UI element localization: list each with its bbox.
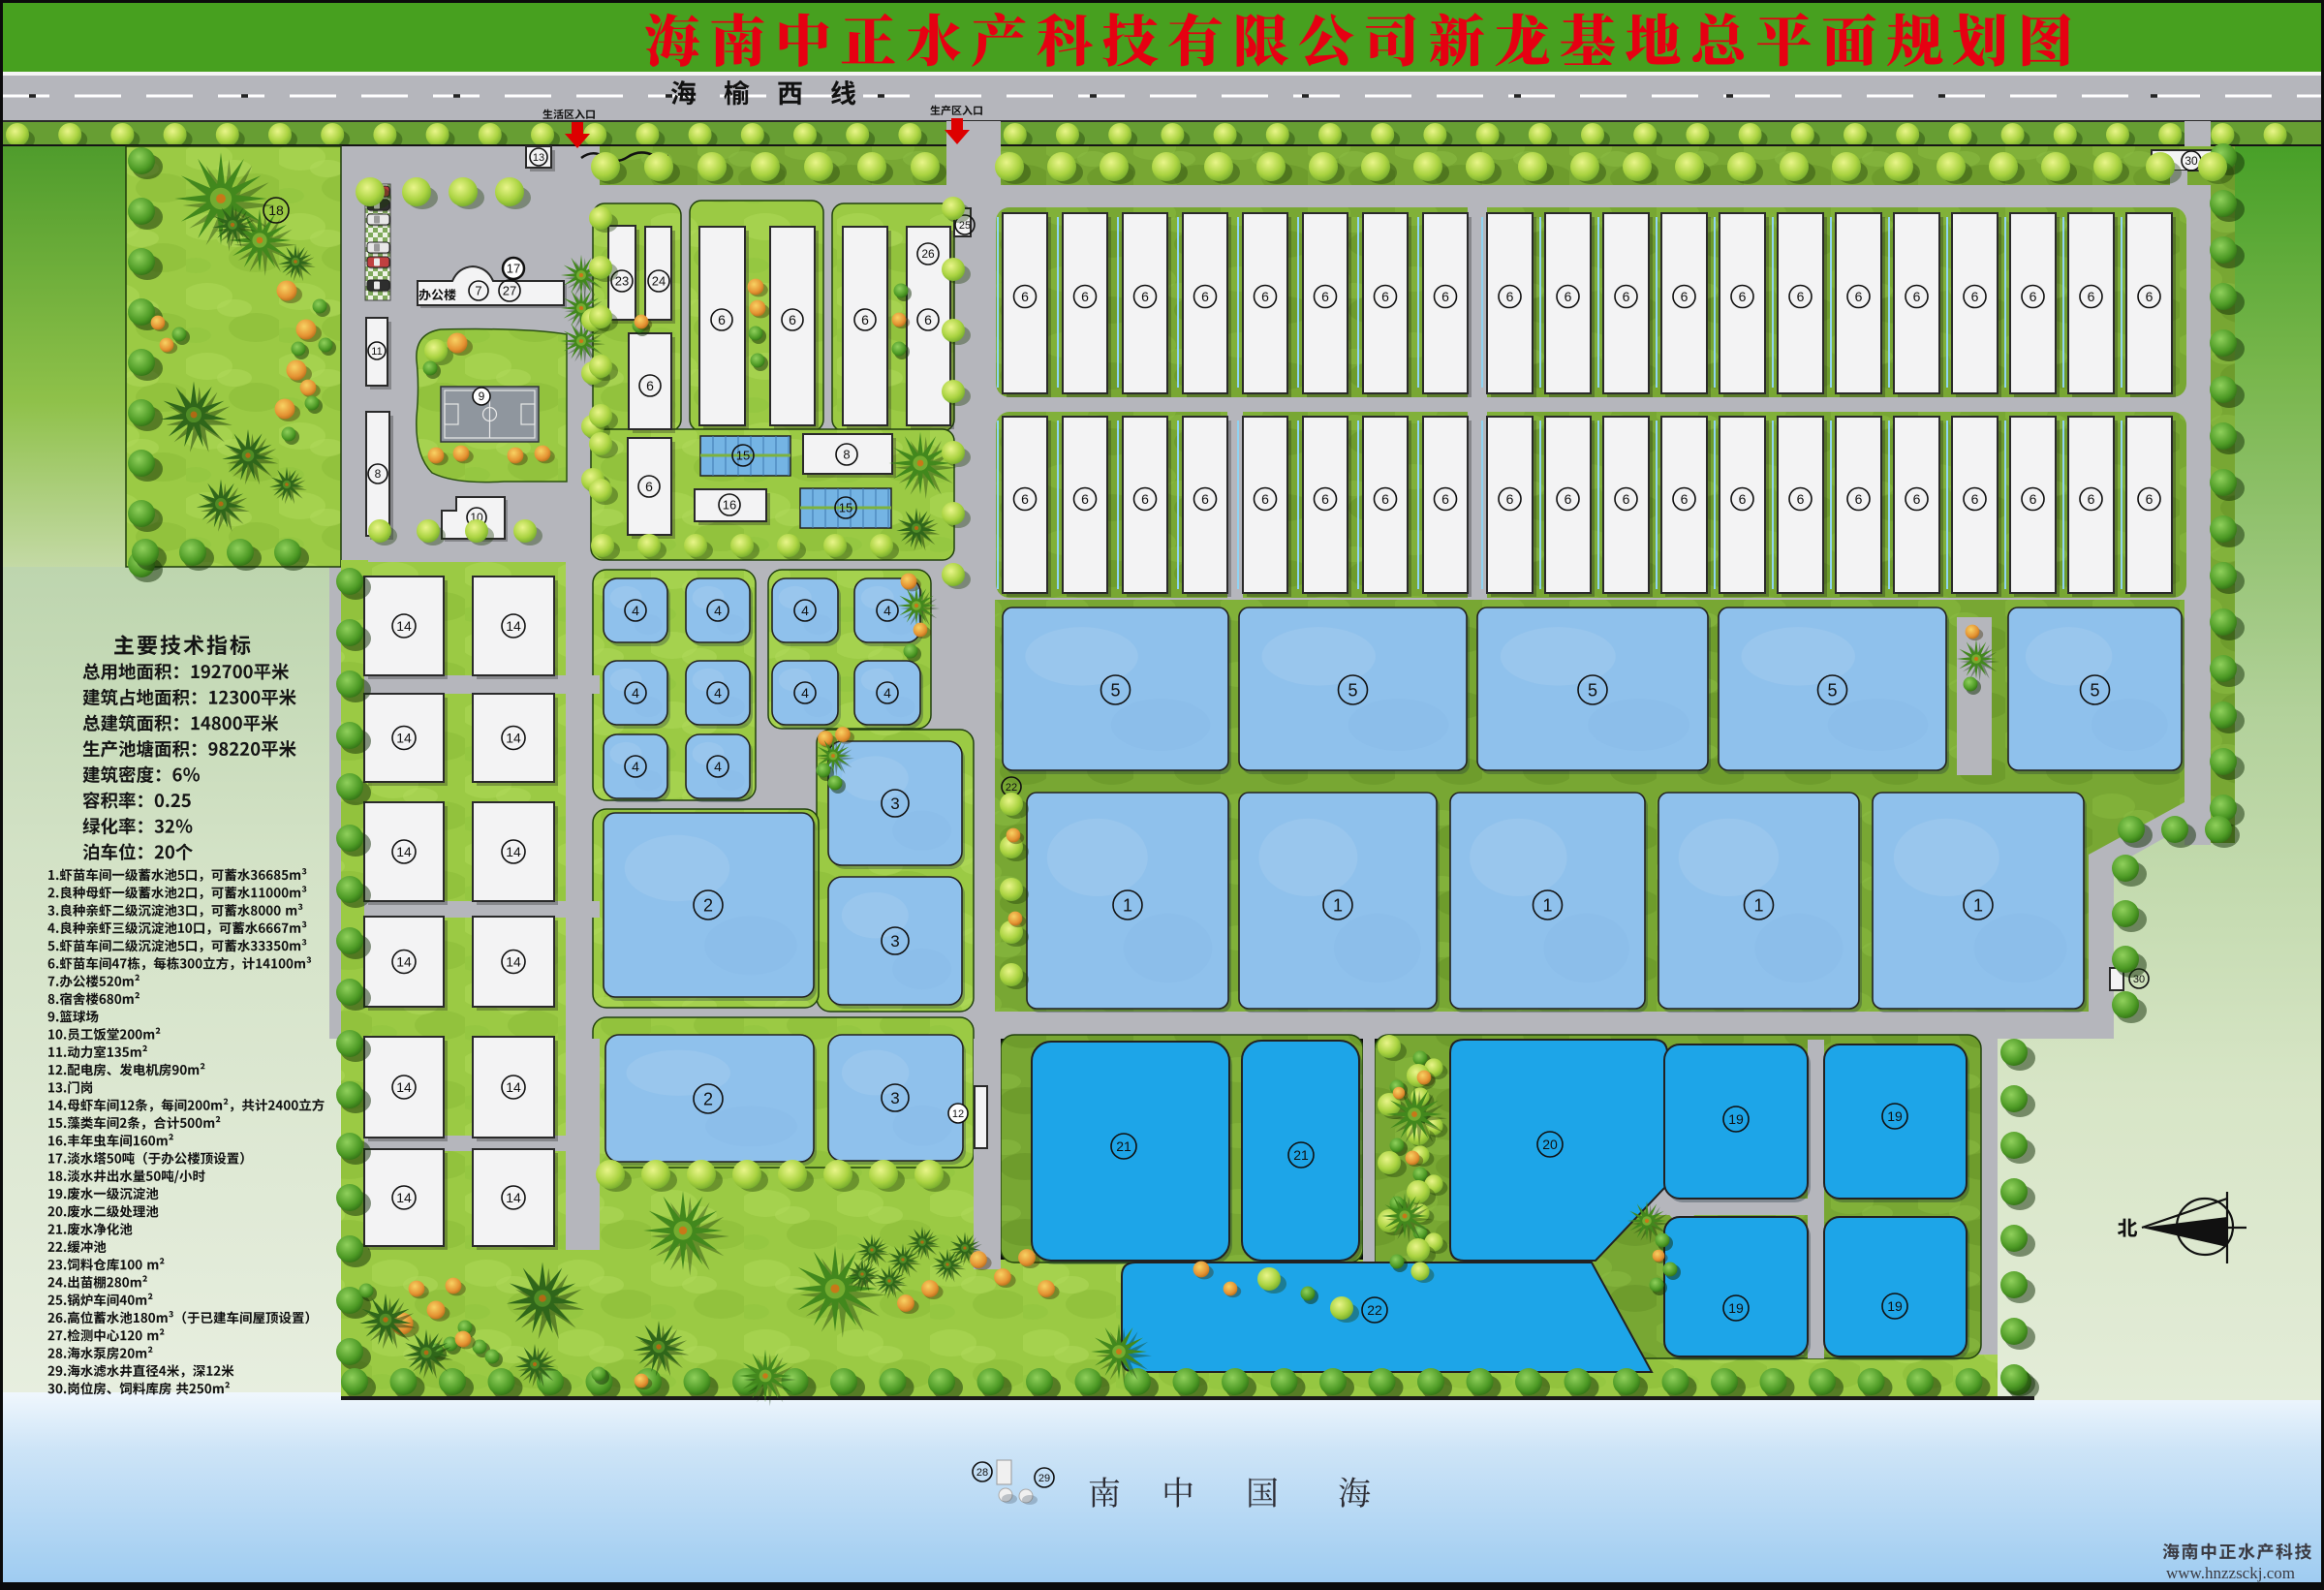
- svg-text:27: 27: [503, 284, 516, 298]
- svg-text:19: 19: [1887, 1298, 1903, 1314]
- svg-text:15: 15: [736, 449, 750, 463]
- svg-text:4: 4: [632, 603, 639, 618]
- svg-text:6: 6: [1141, 491, 1149, 507]
- svg-text:6: 6: [1201, 491, 1209, 507]
- svg-text:6: 6: [1913, 491, 1921, 507]
- svg-text:18: 18: [268, 203, 284, 218]
- svg-text:22: 22: [1367, 1302, 1382, 1318]
- svg-text:6: 6: [1321, 491, 1329, 507]
- svg-text:8: 8: [843, 448, 850, 462]
- svg-text:6: 6: [646, 378, 654, 393]
- svg-text:4: 4: [714, 685, 722, 701]
- svg-text:14: 14: [396, 953, 412, 969]
- svg-text:www.hnzzsckj.com: www.hnzzsckj.com: [2166, 1564, 2295, 1582]
- svg-text:30: 30: [2185, 154, 2198, 168]
- svg-text:6: 6: [1081, 491, 1089, 507]
- svg-text:4: 4: [883, 685, 891, 701]
- svg-text:6: 6: [1506, 491, 1514, 507]
- svg-text:6: 6: [1565, 491, 1572, 507]
- svg-text:6: 6: [2030, 289, 2037, 304]
- svg-text:11: 11: [371, 346, 382, 358]
- svg-text:3: 3: [890, 1089, 899, 1107]
- svg-text:6: 6: [924, 312, 932, 327]
- svg-text:4: 4: [714, 603, 722, 618]
- svg-text:4: 4: [632, 685, 639, 701]
- svg-text:14: 14: [506, 953, 521, 969]
- svg-text:6: 6: [1855, 491, 1863, 507]
- svg-text:1: 1: [1973, 895, 1983, 915]
- svg-text:14: 14: [396, 844, 412, 859]
- svg-text:21: 21: [1116, 1138, 1131, 1154]
- svg-text:6: 6: [1855, 289, 1863, 304]
- svg-text:6: 6: [718, 312, 726, 327]
- svg-text:9: 9: [479, 390, 485, 403]
- svg-text:1: 1: [1333, 895, 1343, 915]
- svg-text:22: 22: [1006, 782, 1017, 794]
- svg-text:14: 14: [506, 618, 521, 634]
- svg-text:6: 6: [645, 479, 653, 494]
- svg-text:6: 6: [1797, 289, 1805, 304]
- svg-text:14: 14: [396, 1079, 412, 1095]
- svg-text:6: 6: [1381, 289, 1389, 304]
- svg-text:19: 19: [1887, 1108, 1903, 1124]
- svg-text:21: 21: [1293, 1147, 1309, 1163]
- svg-text:29: 29: [1038, 1473, 1050, 1484]
- svg-text:6: 6: [1201, 289, 1209, 304]
- svg-text:6: 6: [1506, 289, 1514, 304]
- svg-text:1: 1: [1753, 895, 1763, 915]
- svg-text:6: 6: [1623, 289, 1630, 304]
- svg-text:1: 1: [1542, 895, 1552, 915]
- svg-text:19: 19: [1728, 1111, 1744, 1127]
- svg-text:24: 24: [652, 274, 666, 289]
- svg-text:6: 6: [1261, 289, 1269, 304]
- svg-text:6: 6: [1623, 491, 1630, 507]
- svg-text:14: 14: [506, 1079, 521, 1095]
- svg-text:13: 13: [533, 152, 544, 164]
- svg-text:6: 6: [1021, 289, 1029, 304]
- svg-text:6: 6: [1081, 289, 1089, 304]
- svg-text:5: 5: [1348, 680, 1357, 700]
- svg-text:1: 1: [1123, 895, 1132, 915]
- svg-text:6: 6: [1021, 491, 1029, 507]
- svg-text:14: 14: [506, 844, 521, 859]
- svg-text:4: 4: [801, 685, 809, 701]
- svg-text:17: 17: [507, 262, 520, 276]
- svg-text:14: 14: [506, 730, 521, 745]
- svg-text:7: 7: [475, 284, 481, 298]
- svg-text:8: 8: [375, 467, 382, 481]
- svg-text:4: 4: [714, 759, 722, 774]
- svg-text:6: 6: [1565, 289, 1572, 304]
- svg-text:5: 5: [1110, 680, 1120, 700]
- svg-text:19: 19: [1728, 1300, 1744, 1316]
- svg-text:28: 28: [976, 1467, 988, 1479]
- svg-text:6: 6: [1141, 289, 1149, 304]
- svg-text:16: 16: [723, 498, 736, 513]
- svg-text:2: 2: [703, 895, 713, 915]
- svg-text:6: 6: [1681, 491, 1689, 507]
- svg-text:6: 6: [1261, 491, 1269, 507]
- svg-text:4: 4: [883, 603, 891, 618]
- svg-text:14: 14: [396, 618, 412, 634]
- svg-text:4: 4: [632, 759, 639, 774]
- svg-text:6: 6: [1913, 289, 1921, 304]
- svg-text:6: 6: [1739, 491, 1747, 507]
- svg-text:6: 6: [2088, 491, 2095, 507]
- svg-text:6: 6: [2088, 289, 2095, 304]
- svg-text:6: 6: [2146, 491, 2154, 507]
- svg-text:3: 3: [890, 795, 899, 813]
- svg-text:6: 6: [1441, 491, 1449, 507]
- svg-text:6: 6: [789, 312, 796, 327]
- svg-text:6: 6: [1381, 491, 1389, 507]
- svg-text:6: 6: [1971, 491, 1979, 507]
- svg-text:6: 6: [1681, 289, 1689, 304]
- svg-text:20: 20: [1542, 1137, 1558, 1152]
- svg-text:6: 6: [1321, 289, 1329, 304]
- svg-text:14: 14: [506, 1190, 521, 1205]
- svg-text:6: 6: [2030, 491, 2037, 507]
- svg-text:6: 6: [1739, 289, 1747, 304]
- svg-text:2: 2: [703, 1089, 713, 1108]
- svg-text:5: 5: [1827, 680, 1837, 700]
- svg-text:6: 6: [1441, 289, 1449, 304]
- svg-text:3: 3: [890, 932, 899, 951]
- svg-text:14: 14: [396, 1190, 412, 1205]
- svg-text:14: 14: [396, 730, 412, 745]
- svg-text:26: 26: [921, 247, 935, 261]
- svg-text:4: 4: [801, 603, 809, 618]
- svg-text:6: 6: [1971, 289, 1979, 304]
- svg-text:12: 12: [952, 1108, 964, 1120]
- svg-text:6: 6: [861, 312, 869, 327]
- svg-text:5: 5: [1588, 680, 1597, 700]
- svg-text:15: 15: [839, 501, 852, 515]
- svg-text:6: 6: [2146, 289, 2154, 304]
- svg-text:6: 6: [1797, 491, 1805, 507]
- svg-text:5: 5: [2090, 680, 2099, 700]
